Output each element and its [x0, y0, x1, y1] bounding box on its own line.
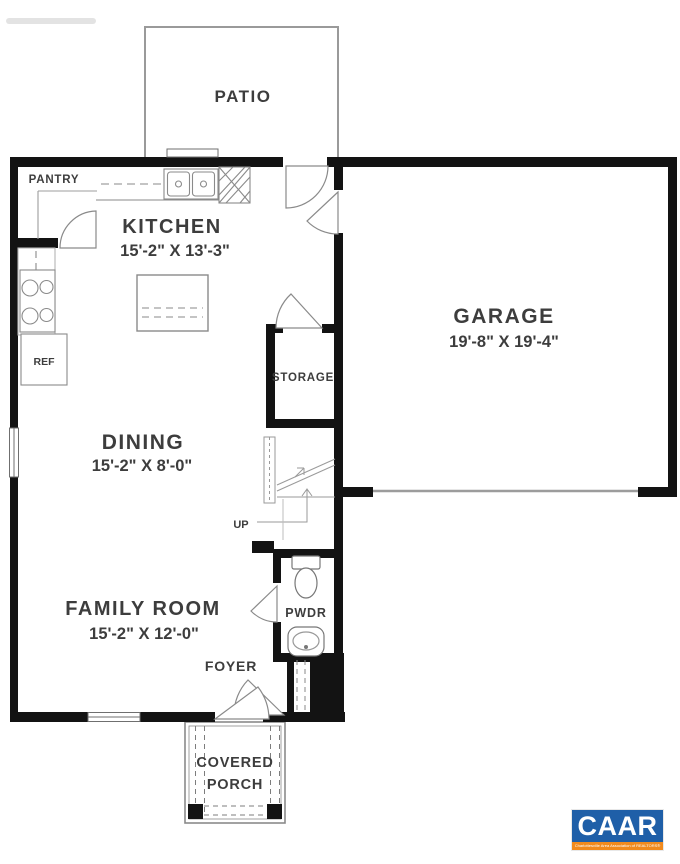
wall-left-upper — [10, 157, 18, 428]
wall-storage-bottom — [266, 419, 343, 428]
stair-direction-arrow — [295, 468, 304, 477]
kitchen-fixtures — [18, 167, 250, 385]
wall-pwdr-left-upper — [273, 549, 281, 583]
wall-left-lower — [10, 477, 18, 722]
wall-divider-top — [334, 167, 343, 190]
kitchen-island — [137, 275, 208, 331]
patio-door-arc — [286, 166, 328, 208]
dining-dims: 15'-2" X 8'-0" — [92, 457, 193, 475]
wall-pantry — [10, 238, 58, 248]
wall-closet-left — [287, 653, 294, 718]
pwdr-label: PWDR — [285, 606, 326, 620]
scan-artifact — [6, 18, 96, 24]
ref-label: REF — [34, 356, 56, 368]
foyer-label: FOYER — [205, 658, 257, 674]
wall-bottom-left — [10, 712, 88, 722]
floor-plan: PATIO PANTRY KITCHEN 15'-2" X 13'-3" GAR… — [0, 0, 680, 864]
pantry-door-arc — [60, 211, 96, 248]
wall-garage-stub-left — [343, 487, 373, 497]
toilet-bowl — [295, 568, 317, 598]
family-room-dims: 15'-2" X 12'-0" — [89, 625, 199, 643]
toilet-tank — [292, 556, 320, 569]
caar-logo-text: CAAR — [572, 810, 663, 842]
wall-top-left — [10, 157, 283, 167]
floor-plan-page: PATIO PANTRY KITCHEN 15'-2" X 13'-3" GAR… — [0, 0, 680, 864]
wall-top-right — [327, 157, 677, 167]
covered-porch-label-line2: PORCH — [207, 777, 263, 793]
wall-divider — [334, 233, 343, 722]
covered-porch — [185, 722, 285, 823]
stair-break-line — [277, 465, 335, 491]
wall-storage-top-right — [322, 324, 334, 333]
cooktop-fixture — [20, 270, 55, 332]
caar-logo: CAAR Charlottesville Area Association of… — [572, 810, 663, 850]
wall-garage-right — [668, 157, 677, 497]
kitchen-sink-fixture — [164, 169, 218, 199]
window-kitchen-sink — [167, 149, 218, 157]
up-label: UP — [233, 519, 248, 531]
wall-closet-mass — [310, 653, 344, 718]
garage-dims: 19'-8" X 19'-4" — [449, 333, 559, 351]
wall-stair-newel — [252, 541, 274, 553]
powder-door-arc — [251, 586, 277, 622]
range-fixture — [219, 167, 250, 203]
kitchen-dims: 15'-2" X 13'-3" — [120, 242, 230, 260]
wall-bottom-mid — [140, 712, 215, 722]
wall-garage-stub-right — [638, 487, 668, 497]
storage-label: STORAGE — [272, 372, 334, 384]
porch-post — [188, 804, 203, 819]
covered-porch-label-line1: COVERED — [196, 755, 273, 771]
garage-label: GARAGE — [453, 305, 554, 328]
kitchen-label: KITCHEN — [122, 216, 221, 238]
stair-break-line — [277, 459, 335, 485]
stairs — [257, 437, 335, 540]
caar-logo-tagline: Charlottesville Area Association of REAL… — [572, 842, 663, 850]
family-room-label: FAMILY ROOM — [65, 598, 220, 620]
storage-door-arc — [276, 294, 322, 328]
closet-rod-dashes — [297, 660, 305, 711]
powder-sink-drain — [305, 646, 308, 649]
patio-label: PATIO — [215, 87, 272, 106]
porch-post — [267, 804, 282, 819]
dining-label: DINING — [102, 431, 185, 454]
pantry-label: PANTRY — [29, 174, 80, 186]
